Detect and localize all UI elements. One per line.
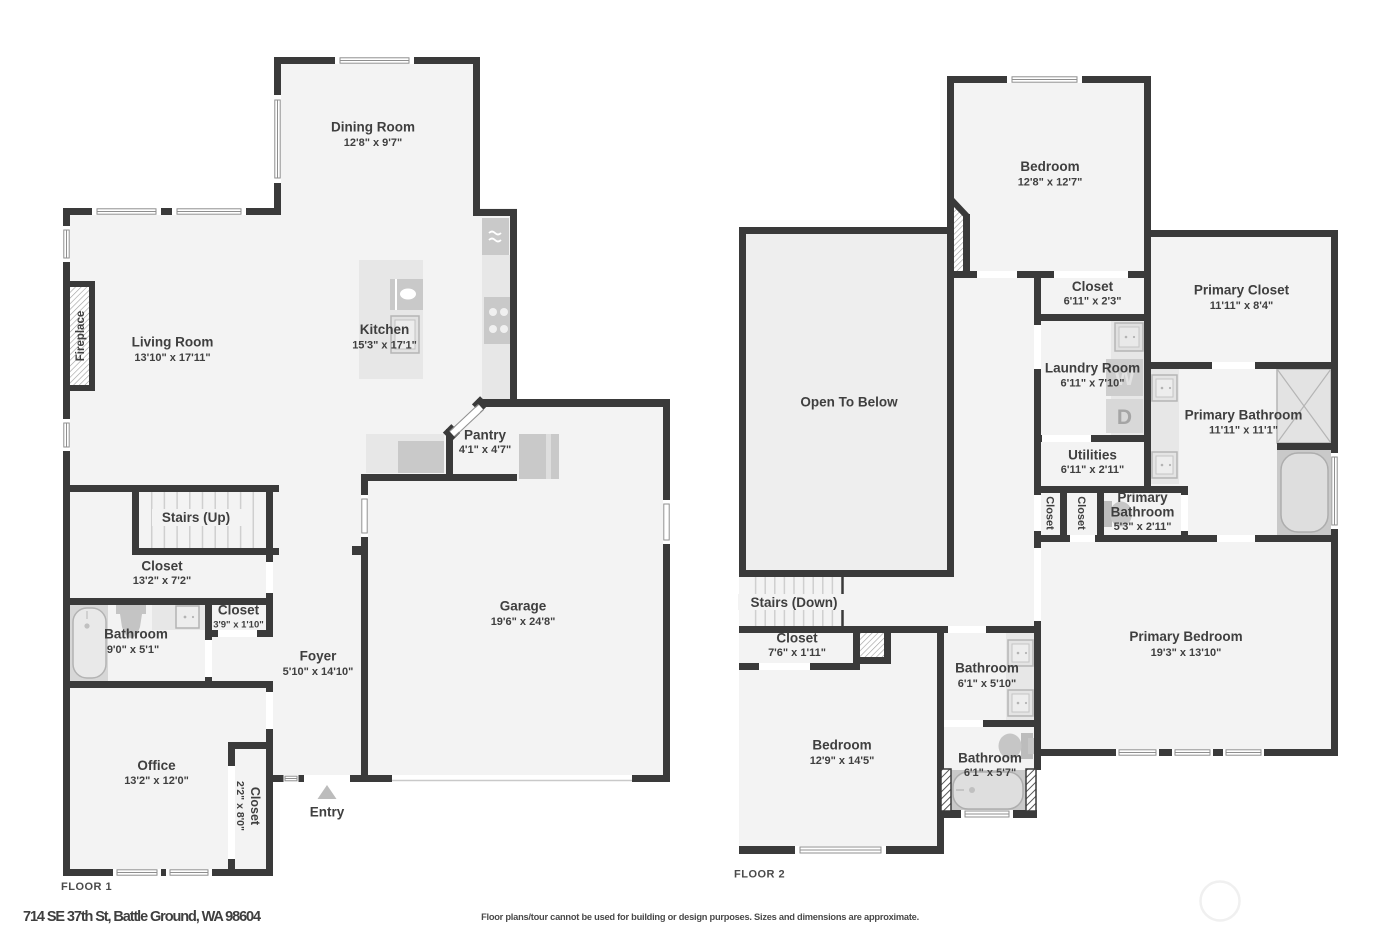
svg-text:714 SE 37th St, Battle Ground,: 714 SE 37th St, Battle Ground, WA 98604: [23, 909, 261, 925]
svg-text:Pantry: Pantry: [464, 428, 507, 443]
svg-text:5'3" x 2'11": 5'3" x 2'11": [1114, 521, 1172, 533]
svg-text:12'8" x 12'7": 12'8" x 12'7": [1018, 177, 1083, 189]
svg-text:2'2" x 8'0": 2'2" x 8'0": [234, 781, 246, 831]
svg-text:FLOOR 1: FLOOR 1: [61, 881, 112, 893]
svg-text:Fireplace: Fireplace: [75, 311, 87, 362]
svg-text:Closet: Closet: [1044, 496, 1056, 530]
svg-text:Primary Closet: Primary Closet: [1194, 283, 1290, 298]
svg-text:7'6" x 1'11": 7'6" x 1'11": [768, 647, 826, 659]
svg-text:4'1" x 4'7": 4'1" x 4'7": [459, 444, 511, 456]
svg-text:Closet: Closet: [1072, 279, 1114, 294]
svg-text:Closet: Closet: [141, 559, 183, 574]
svg-text:12'8" x 9'7": 12'8" x 9'7": [344, 137, 402, 149]
svg-text:19'3" x 13'10": 19'3" x 13'10": [1151, 647, 1222, 659]
svg-text:D: D: [1117, 406, 1132, 429]
svg-text:Stairs (Down): Stairs (Down): [750, 595, 837, 610]
svg-text:Kitchen: Kitchen: [360, 322, 410, 337]
svg-text:FLOOR 2: FLOOR 2: [734, 869, 785, 881]
svg-text:Laundry Room: Laundry Room: [1045, 361, 1140, 376]
svg-text:Bathroom: Bathroom: [104, 627, 168, 642]
svg-text:6'11" x 2'11": 6'11" x 2'11": [1061, 464, 1124, 476]
svg-text:Closet: Closet: [218, 603, 260, 618]
svg-text:Utilities: Utilities: [1068, 448, 1117, 463]
svg-text:Open To Below: Open To Below: [800, 395, 898, 410]
svg-text:Closet: Closet: [776, 631, 818, 646]
svg-text:Bathroom: Bathroom: [1111, 505, 1175, 520]
svg-text:12'9" x 14'5": 12'9" x 14'5": [810, 755, 875, 767]
svg-text:13'2" x 7'2": 13'2" x 7'2": [133, 575, 191, 587]
svg-text:Closet: Closet: [248, 787, 262, 826]
svg-text:6'1" x 5'10": 6'1" x 5'10": [958, 678, 1016, 690]
svg-text:Primary: Primary: [1117, 490, 1168, 505]
svg-text:6'11" x 7'10": 6'11" x 7'10": [1061, 378, 1125, 390]
svg-text:19'6" x 24'8": 19'6" x 24'8": [491, 616, 556, 628]
svg-text:15'3" x 17'1": 15'3" x 17'1": [352, 340, 417, 352]
svg-text:Bathroom: Bathroom: [955, 661, 1019, 676]
svg-text:Bedroom: Bedroom: [1020, 159, 1079, 174]
svg-text:Primary Bathroom: Primary Bathroom: [1185, 408, 1303, 423]
svg-text:3'9" x 1'10": 3'9" x 1'10": [213, 620, 264, 631]
svg-text:Foyer: Foyer: [300, 649, 338, 664]
svg-text:6'1" x 5'7": 6'1" x 5'7": [964, 767, 1016, 779]
svg-text:13'2" x 12'0": 13'2" x 12'0": [124, 775, 189, 787]
svg-text:13'10" x 17'11": 13'10" x 17'11": [134, 352, 210, 364]
svg-text:5'10" x 14'10": 5'10" x 14'10": [283, 666, 354, 678]
svg-text:Bathroom: Bathroom: [958, 751, 1022, 766]
svg-text:Floor plans/tour cannot be use: Floor plans/tour cannot be used for buil…: [481, 912, 919, 922]
svg-text:Stairs (Up): Stairs (Up): [162, 510, 230, 525]
svg-text:Entry: Entry: [310, 805, 345, 820]
svg-text:11'11" x 11'1": 11'11" x 11'1": [1209, 425, 1278, 437]
svg-text:Bedroom: Bedroom: [812, 738, 871, 753]
svg-text:Closet: Closet: [1075, 496, 1087, 530]
svg-text:Living Room: Living Room: [132, 335, 214, 350]
svg-text:6'11" x 2'3": 6'11" x 2'3": [1064, 296, 1122, 308]
svg-text:11'11" x 8'4": 11'11" x 8'4": [1210, 300, 1273, 312]
svg-text:9'0" x 5'1": 9'0" x 5'1": [107, 644, 159, 656]
svg-text:Office: Office: [137, 758, 176, 773]
svg-text:Garage: Garage: [500, 599, 547, 614]
svg-text:Dining Room: Dining Room: [331, 120, 415, 135]
svg-text:Primary Bedroom: Primary Bedroom: [1129, 629, 1242, 644]
